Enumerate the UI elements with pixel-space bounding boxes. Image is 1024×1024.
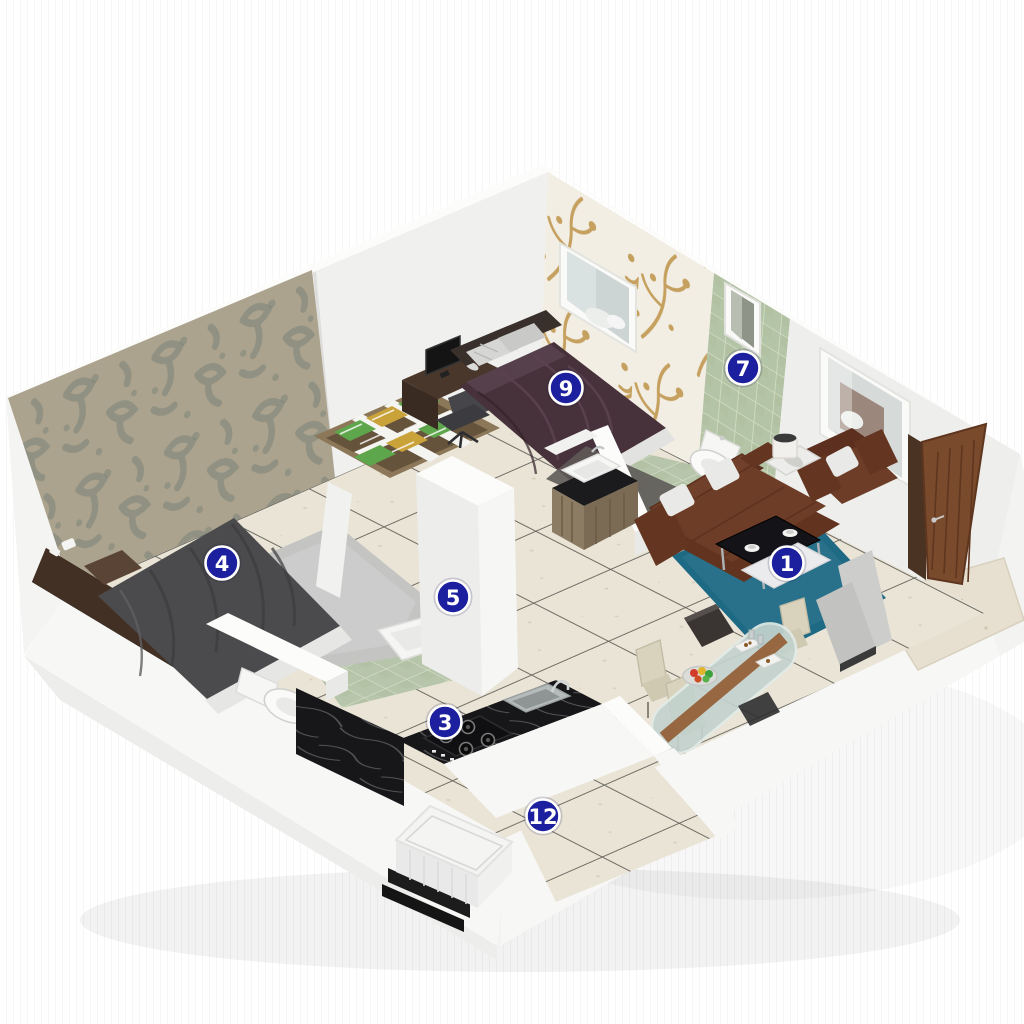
floorplan-3d-render: 1 3 4 5 7 9 12 [0, 0, 1024, 1024]
room-marker-12[interactable]: 12 [525, 798, 562, 835]
room-marker-4[interactable]: 4 [204, 545, 241, 582]
floorplan-canvas: 1 3 4 5 7 9 12 [0, 0, 1024, 1024]
svg-text:12: 12 [528, 805, 557, 829]
room-marker-3[interactable]: 3 [427, 704, 464, 741]
svg-text:3: 3 [438, 711, 453, 735]
svg-text:5: 5 [446, 586, 461, 610]
room-marker-7[interactable]: 7 [725, 350, 762, 387]
room-marker-5[interactable]: 5 [435, 579, 472, 616]
column [416, 456, 518, 696]
svg-text:1: 1 [780, 552, 795, 576]
room-marker-9[interactable]: 9 [548, 370, 585, 407]
room-marker-1[interactable]: 1 [769, 545, 806, 582]
svg-text:7: 7 [736, 357, 751, 381]
svg-text:9: 9 [559, 377, 574, 401]
svg-text:4: 4 [215, 552, 230, 576]
